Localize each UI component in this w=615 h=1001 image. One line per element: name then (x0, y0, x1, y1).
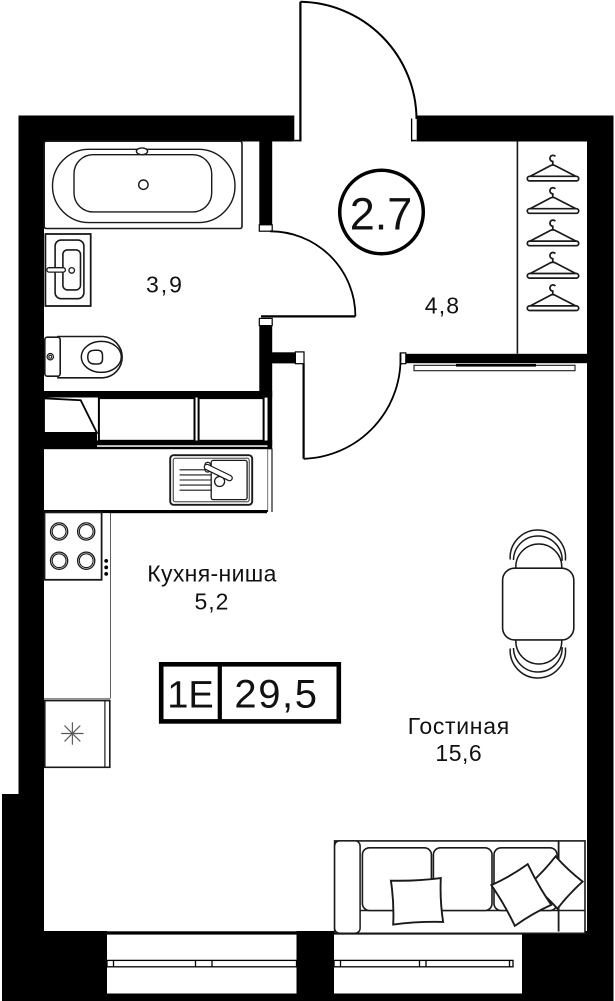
svg-text:Гостиная: Гостиная (408, 713, 510, 739)
svg-text:4,8: 4,8 (425, 292, 461, 318)
svg-text:1Е: 1Е (167, 675, 213, 717)
svg-text:15,6: 15,6 (435, 740, 482, 766)
svg-text:29,5: 29,5 (234, 673, 318, 717)
svg-text:2.7: 2.7 (350, 189, 413, 240)
svg-text:5,2: 5,2 (195, 589, 230, 615)
svg-text:3,9: 3,9 (146, 271, 184, 297)
svg-text:Кухня-ниша: Кухня-ниша (147, 561, 277, 587)
